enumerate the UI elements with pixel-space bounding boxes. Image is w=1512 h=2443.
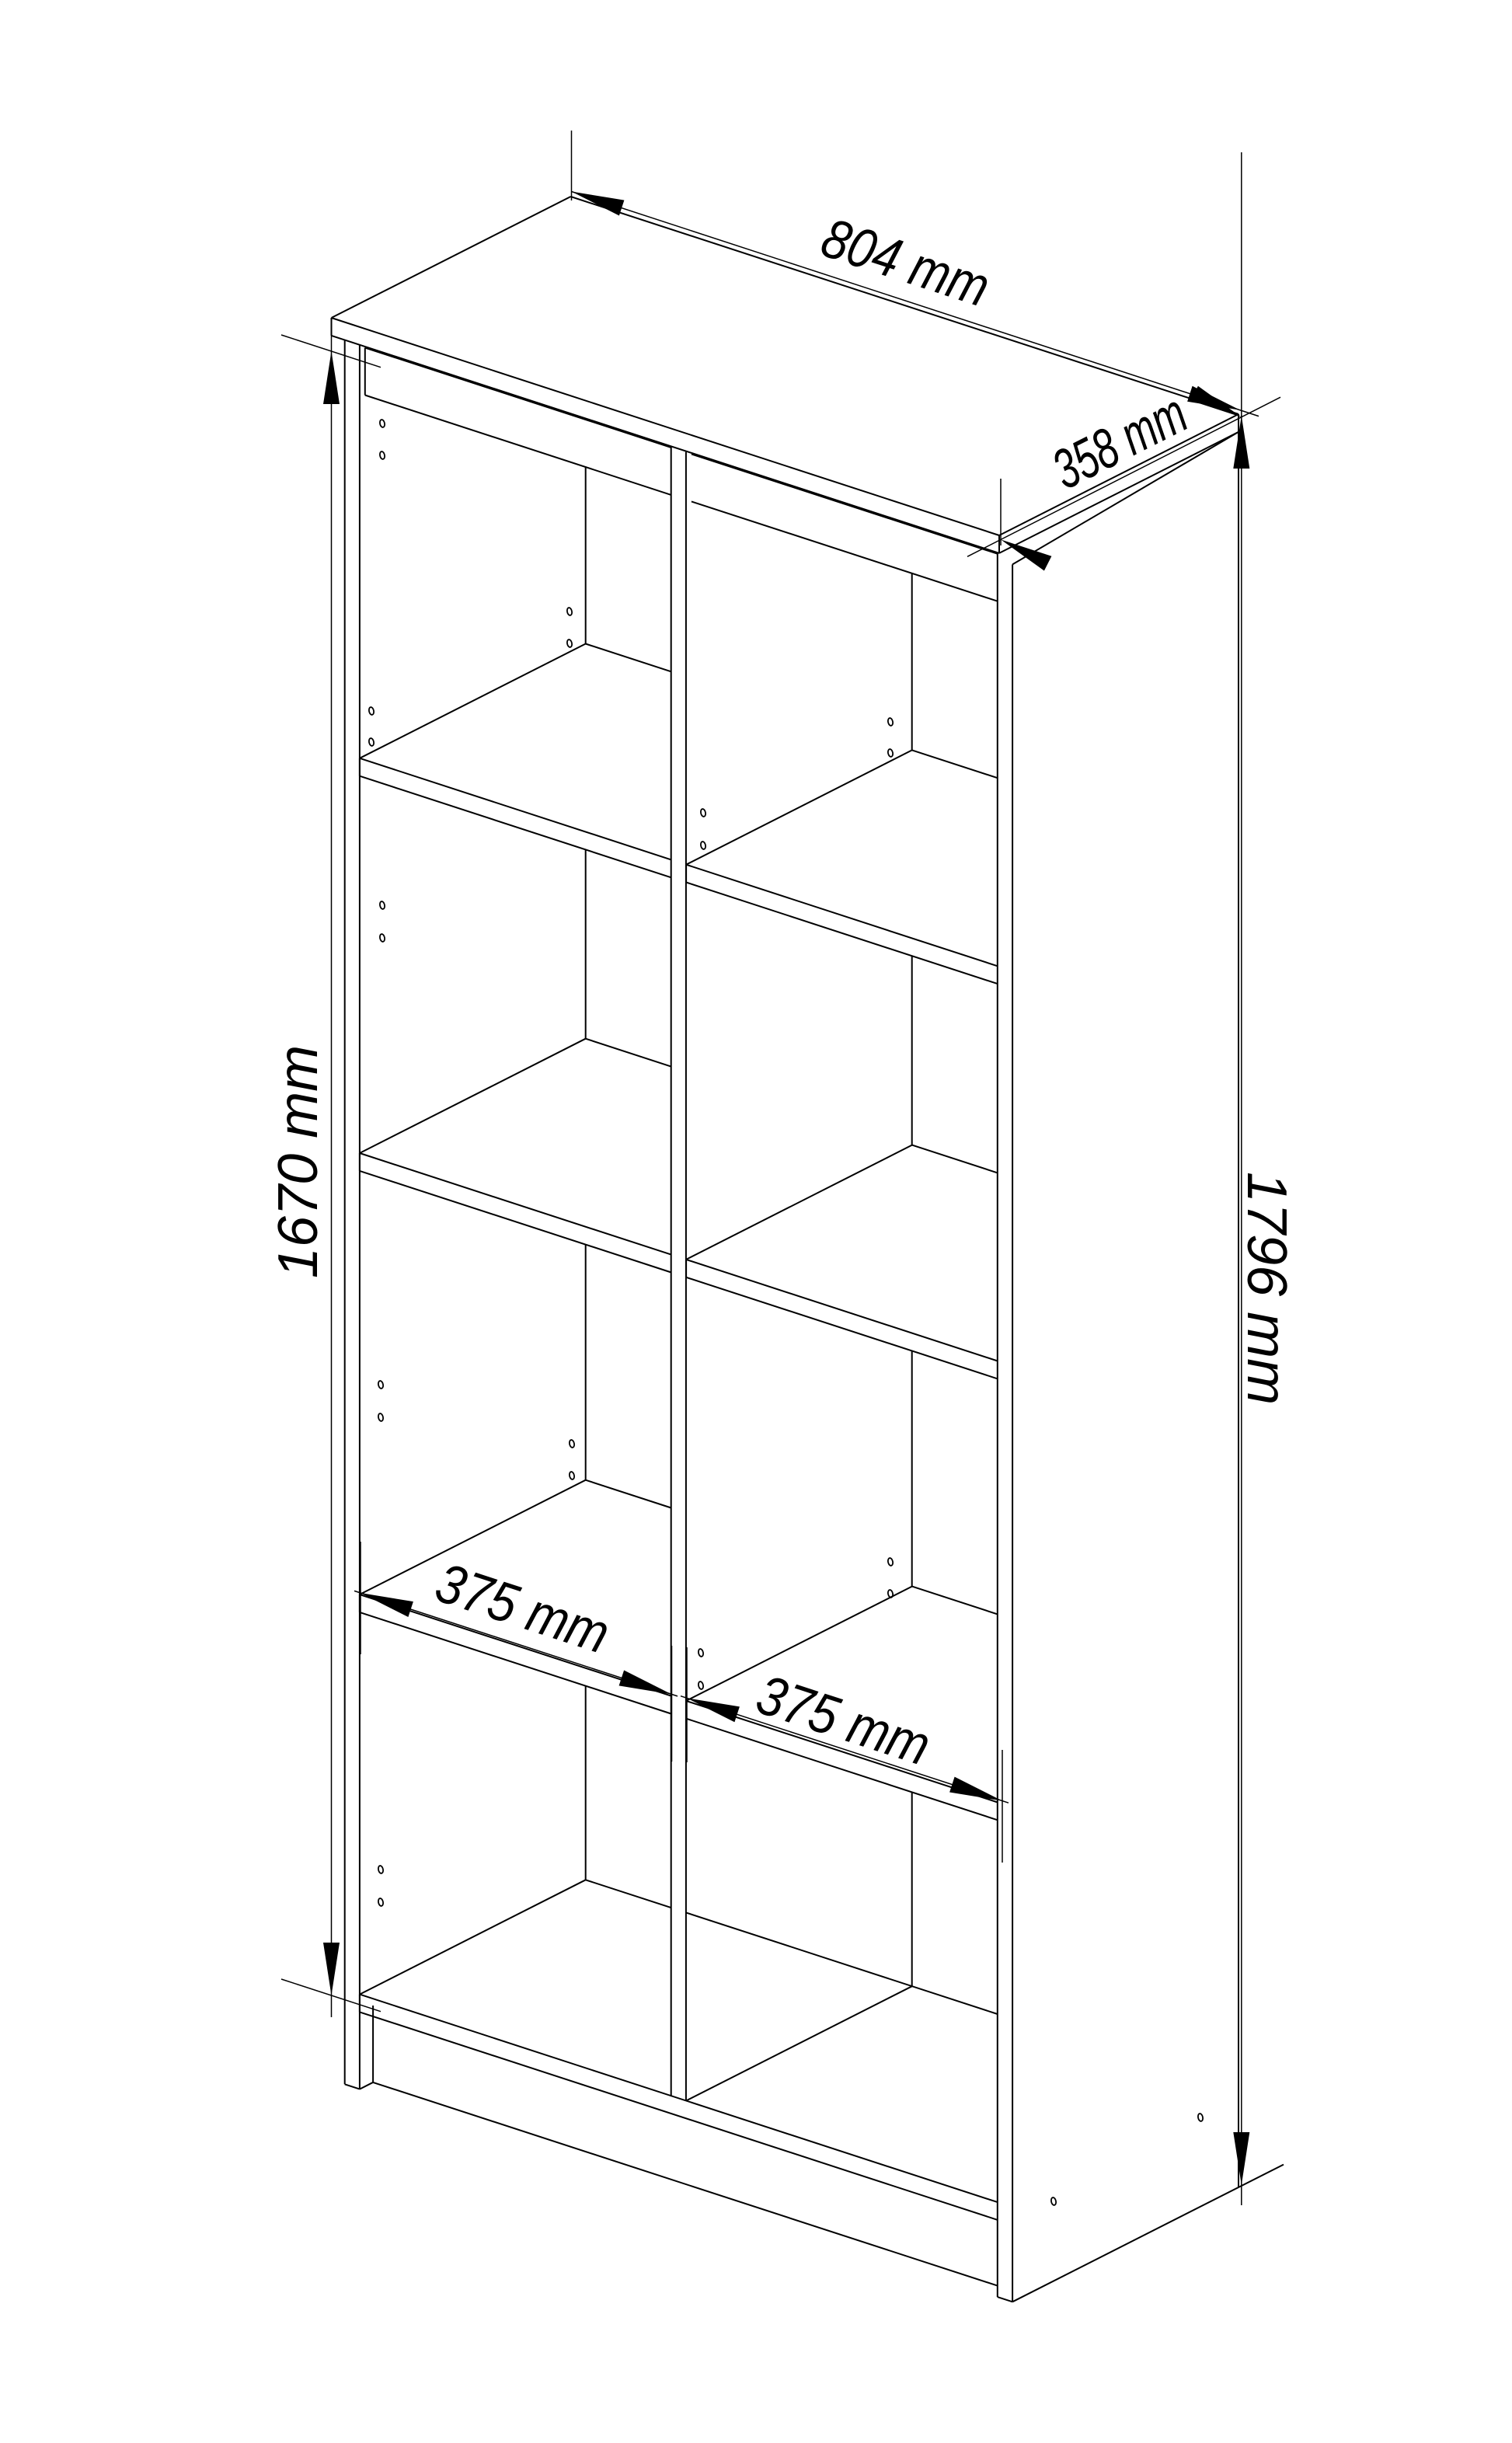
svg-text:1670 mm: 1670 mm [267,1045,329,1278]
svg-text:1796 mm: 1796 mm [1235,1172,1298,1405]
